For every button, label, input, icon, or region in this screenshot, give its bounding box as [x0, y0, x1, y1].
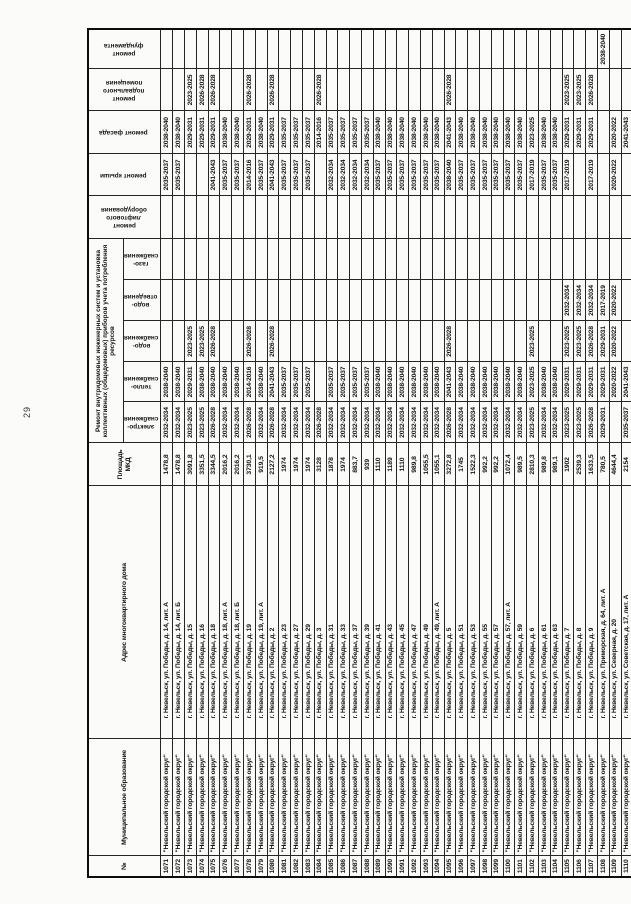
- cell-heat: 2038-2040: [456, 362, 468, 402]
- table-row: 1083"Невельский городской округ"г. Невел…: [303, 29, 315, 877]
- cell-municipality: "Невельский городской округ": [515, 739, 527, 856]
- cell-municipality: "Невельский городской округ": [267, 739, 279, 856]
- cell-roof: 2041-2043: [267, 154, 279, 196]
- cell-roof: 2041-2043: [208, 154, 220, 196]
- cell-address: г. Невельск, ул. Победы, д. 18, лит. Б: [232, 486, 244, 739]
- cell-address: г. Невельск, ул. Победы, д. 8: [574, 486, 586, 739]
- table-row: 1107"Невельский городской округ"г. Невел…: [586, 29, 598, 877]
- cell-heat: 2041-2043: [267, 362, 279, 402]
- cell-number: 1110: [621, 856, 631, 877]
- cell-water: 2023-2025: [196, 321, 208, 362]
- cell-address: г. Невельск, ул. Победы, д. 15: [185, 486, 197, 739]
- cell-municipality: "Невельский городской округ": [574, 739, 586, 856]
- cell-gas: [232, 239, 244, 280]
- cell-address: г. Невельск, ул. Победы, д. 16: [196, 486, 208, 739]
- cell-address: г. Невельск, ул. Победы, д. 2: [267, 486, 279, 739]
- cell-elevator: [586, 196, 598, 239]
- cell-electro: 2026-2028: [314, 402, 326, 443]
- cell-basement: [503, 69, 515, 111]
- cell-water: 2023-2025: [185, 321, 197, 362]
- table-row: 1080"Невельский городской округ"г. Невел…: [267, 29, 279, 877]
- cell-roof: [597, 154, 609, 196]
- cell-foundation: [303, 29, 315, 69]
- cell-number: 1083: [303, 856, 315, 877]
- cell-basement: [491, 69, 503, 111]
- cell-heat: 2029-2031: [562, 362, 574, 402]
- cell-number: 1102: [527, 856, 539, 877]
- page-number: 29: [22, 406, 32, 418]
- cell-address: г. Невельск, ул. Победы, д. 3: [314, 486, 326, 739]
- cell-number: 1086: [338, 856, 350, 877]
- cell-address: г. Невельск, ул. Победы, д. 18: [208, 486, 220, 739]
- cell-water: 2023-2025: [562, 321, 574, 362]
- cell-basement: 2026-2028: [444, 69, 456, 111]
- cell-basement: [456, 69, 468, 111]
- cell-facade: 2035-2037: [350, 111, 362, 154]
- cell-gas: [373, 239, 385, 280]
- cell-gas: [444, 239, 456, 280]
- cell-basement: [291, 69, 303, 111]
- cell-basement: [385, 69, 397, 111]
- cell-sewer: [326, 280, 338, 321]
- cell-municipality: "Невельский городской округ": [232, 739, 244, 856]
- cell-sewer: [196, 280, 208, 321]
- table-row: 1089"Невельский городской округ"г. Невел…: [373, 29, 385, 877]
- cell-gas: [291, 239, 303, 280]
- cell-electro: 2032-2034: [338, 402, 350, 443]
- cell-address: г. Невельск, ул. Победы, д. 27: [291, 486, 303, 739]
- cell-roof: 2014-2016: [244, 154, 256, 196]
- cell-elevator: [527, 196, 539, 239]
- table-row: 1102"Невельский городской округ"г. Невел…: [527, 29, 539, 877]
- cell-address: г. Невельск, ул. Победы, д. 59: [515, 486, 527, 739]
- cell-facade: 2041-2043: [621, 111, 631, 154]
- cell-water: [314, 321, 326, 362]
- table-row: 1100"Невельский городской округ"г. Невел…: [503, 29, 515, 877]
- cell-water: [421, 321, 433, 362]
- cell-area: 1745: [456, 443, 468, 486]
- cell-number: 1095: [444, 856, 456, 877]
- cell-number: 1087: [350, 856, 362, 877]
- table-row: 1094"Невельский городской округ"г. Невел…: [432, 29, 444, 877]
- cell-foundation: [373, 29, 385, 69]
- cell-basement: 2026-2028: [208, 69, 220, 111]
- cell-elevator: [208, 196, 220, 239]
- cell-elevator: [220, 196, 232, 239]
- cell-area: 1633,5: [586, 443, 598, 486]
- cell-electro: 2029-2031: [597, 402, 609, 443]
- cell-basement: [362, 69, 374, 111]
- cell-roof: 2035-2037: [456, 154, 468, 196]
- cell-municipality: "Невельский городской округ": [609, 739, 621, 856]
- cell-foundation: [362, 29, 374, 69]
- cell-water: [173, 321, 185, 362]
- cell-electro: 2032-2034: [385, 402, 397, 443]
- cell-area: 992,2: [479, 443, 491, 486]
- cell-water: 2026-2028: [244, 321, 256, 362]
- cell-number: 1094: [432, 856, 444, 877]
- cell-foundation: [456, 29, 468, 69]
- cell-sewer: [550, 280, 562, 321]
- cell-address: г. Невельск, ул. Победы, д. 45: [397, 486, 409, 739]
- cell-heat: 2038-2040: [196, 362, 208, 402]
- cell-facade: 2014-2016: [314, 111, 326, 154]
- cell-gas: [173, 239, 185, 280]
- table-row: 1101"Невельский городской округ"г. Невел…: [515, 29, 527, 877]
- cell-sewer: [255, 280, 267, 321]
- cell-roof: 2035-2037: [432, 154, 444, 196]
- cell-address: г. Невельск, ул. Победы, д. 14, лит. Б: [173, 486, 185, 739]
- cell-gas: [515, 239, 527, 280]
- cell-facade: 2029-2031: [185, 111, 197, 154]
- table-row: 1088"Невельский городской округ"г. Невел…: [362, 29, 374, 877]
- cell-roof: 2017-2019: [586, 154, 598, 196]
- cell-facade: 2029-2031: [562, 111, 574, 154]
- cell-municipality: "Невельский городской округ": [432, 739, 444, 856]
- cell-sewer: [161, 280, 173, 321]
- cell-heat: 2038-2040: [373, 362, 385, 402]
- cell-basement: [373, 69, 385, 111]
- cell-facade: 2038-2040: [421, 111, 433, 154]
- cell-roof: 2035-2037: [468, 154, 480, 196]
- cell-number: 1093: [421, 856, 433, 877]
- cell-elevator: [562, 196, 574, 239]
- cell-foundation: [562, 29, 574, 69]
- cell-facade: 2029-2031: [574, 111, 586, 154]
- cell-electro: 2035-2037: [621, 402, 631, 443]
- cell-heat: 2035-2037: [326, 362, 338, 402]
- cell-address: г. Невельск, ул. Победы, д. 57: [491, 486, 503, 739]
- cell-electro: 2032-2034: [550, 402, 562, 443]
- cell-sewer: [468, 280, 480, 321]
- cell-sewer: [621, 280, 631, 321]
- cell-heat: 2038-2040: [173, 362, 185, 402]
- table-row: 1092"Невельский городской округ"г. Невел…: [409, 29, 421, 877]
- cell-electro: 2032-2034: [538, 402, 550, 443]
- cell-electro: 2032-2034: [397, 402, 409, 443]
- cell-elevator: [444, 196, 456, 239]
- cell-municipality: "Невельский городской округ": [208, 739, 220, 856]
- cell-area: 2810,3: [527, 443, 539, 486]
- cell-address: г. Невельск, ул. Победы, д. 14, лит. А: [161, 486, 173, 739]
- cell-heat: 2038-2040: [255, 362, 267, 402]
- cell-water: [468, 321, 480, 362]
- cell-number: 1100: [503, 856, 515, 877]
- cell-sewer: [527, 280, 539, 321]
- cell-facade: 2029-2031: [208, 111, 220, 154]
- cell-foundation: [409, 29, 421, 69]
- cell-address: г. Невельск, ул. Победы, д. 49: [421, 486, 433, 739]
- cell-elevator: [468, 196, 480, 239]
- table-row: 1093"Невельский городской округ"г. Невел…: [421, 29, 433, 877]
- cell-area: 1522,3: [468, 443, 480, 486]
- cell-foundation: [397, 29, 409, 69]
- cell-water: [350, 321, 362, 362]
- cell-number: 1080: [267, 856, 279, 877]
- cell-area: 1055,5: [421, 443, 433, 486]
- table-row: 1097"Невельский городской округ"г. Невел…: [468, 29, 480, 877]
- cell-gas: [185, 239, 197, 280]
- cell-water: [397, 321, 409, 362]
- cell-elevator: [421, 196, 433, 239]
- cell-roof: 2035-2037: [503, 154, 515, 196]
- cell-address: г. Невельск, ул. Победы, д. 33: [338, 486, 350, 739]
- cell-address: г. Невельск, ул. Победы, д. 7: [562, 486, 574, 739]
- cell-sewer: [456, 280, 468, 321]
- cell-heat: [314, 362, 326, 402]
- cell-municipality: "Невельский городской округ": [409, 739, 421, 856]
- cell-electro: 2032-2034: [373, 402, 385, 443]
- cell-roof: 2035-2037: [232, 154, 244, 196]
- cell-electro: 2032-2034: [350, 402, 362, 443]
- cell-electro: 2032-2034: [409, 402, 421, 443]
- cell-heat: 2038-2040: [421, 362, 433, 402]
- cell-roof: [196, 154, 208, 196]
- col-header-elevator: ремонт лифтового оборудования: [88, 196, 161, 239]
- cell-facade: 2038-2040: [550, 111, 562, 154]
- table-row: 1104"Невельский городской округ"г. Невел…: [550, 29, 562, 877]
- cell-municipality: "Невельский городской округ": [550, 739, 562, 856]
- cell-sewer: [421, 280, 433, 321]
- cell-electro: 2032-2034: [421, 402, 433, 443]
- cell-foundation: [326, 29, 338, 69]
- cell-roof: 2017-2019: [562, 154, 574, 196]
- cell-heat: 2038-2040: [503, 362, 515, 402]
- cell-sewer: 2032-2034: [574, 280, 586, 321]
- cell-electro: 2032-2034: [232, 402, 244, 443]
- cell-elevator: [362, 196, 374, 239]
- cell-gas: [503, 239, 515, 280]
- cell-heat: 2038-2040: [232, 362, 244, 402]
- cell-number: 1088: [362, 856, 374, 877]
- cell-gas: [527, 239, 539, 280]
- cell-heat: 2038-2040: [385, 362, 397, 402]
- col-header-roof: ремонт крыши: [88, 154, 161, 196]
- cell-sewer: [385, 280, 397, 321]
- cell-elevator: [373, 196, 385, 239]
- cell-heat: 2035-2037: [350, 362, 362, 402]
- cell-facade: 2038-2040: [503, 111, 515, 154]
- cell-basement: [397, 69, 409, 111]
- cell-area: 3091,8: [185, 443, 197, 486]
- cell-water: 2026-2028: [267, 321, 279, 362]
- cell-address: г. Невельск, ул. Победы, д. 57, лит. А: [503, 486, 515, 739]
- cell-elevator: [550, 196, 562, 239]
- cell-water: [291, 321, 303, 362]
- cell-area: 2154: [621, 443, 631, 486]
- cell-electro: 2032-2034: [468, 402, 480, 443]
- cell-elevator: [185, 196, 197, 239]
- cell-heat: 2029-2031: [597, 362, 609, 402]
- col-header-foundation: ремонт фундамента: [88, 29, 161, 69]
- cell-elevator: [574, 196, 586, 239]
- cell-water: 2029-2031: [597, 321, 609, 362]
- cell-address: г. Невельск, ул. Победы, д. 43: [385, 486, 397, 739]
- col-header-basement: ремонт подвального помещения: [88, 69, 161, 111]
- cell-area: 883,7: [350, 443, 362, 486]
- col-header-water: водо- снабжения: [123, 321, 161, 362]
- table-row: 1109"Невельский городской округ"г. Невел…: [609, 29, 621, 877]
- table-row: 1110"Невельский городской округ"г. Невел…: [621, 29, 631, 877]
- cell-facade: 2029-2031: [196, 111, 208, 154]
- cell-facade: 2035-2037: [291, 111, 303, 154]
- cell-water: [479, 321, 491, 362]
- cell-number: 1076: [220, 856, 232, 877]
- col-header-gas: газо- снабжения: [123, 239, 161, 280]
- cell-elevator: [397, 196, 409, 239]
- cell-gas: [562, 239, 574, 280]
- cell-address: г. Невельск, ул. Советская, д. 17, лит. …: [621, 486, 631, 739]
- cell-number: 1071: [161, 856, 173, 877]
- cell-water: [385, 321, 397, 362]
- cell-elevator: [267, 196, 279, 239]
- cell-sewer: [244, 280, 256, 321]
- cell-address: г. Невельск, ул. Победы, д. 61: [538, 486, 550, 739]
- cell-number: 1101: [515, 856, 527, 877]
- cell-roof: 2032-2034: [338, 154, 350, 196]
- cell-foundation: [479, 29, 491, 69]
- cell-sewer: [303, 280, 315, 321]
- cell-electro: 2032-2034: [326, 402, 338, 443]
- cell-heat: 2041-2043: [444, 362, 456, 402]
- cell-sewer: [338, 280, 350, 321]
- cell-elevator: [385, 196, 397, 239]
- cell-facade: 2038-2040: [515, 111, 527, 154]
- cell-basement: [303, 69, 315, 111]
- cell-electro: 2032-2034: [456, 402, 468, 443]
- cell-elevator: [338, 196, 350, 239]
- cell-foundation: [255, 29, 267, 69]
- cell-foundation: [538, 29, 550, 69]
- cell-roof: 2035-2037: [220, 154, 232, 196]
- cell-area: 1974: [303, 443, 315, 486]
- cell-area: 3128: [314, 443, 326, 486]
- cell-gas: [350, 239, 362, 280]
- cell-electro: 2032-2034: [161, 402, 173, 443]
- cell-heat: 2029-2031: [574, 362, 586, 402]
- table-row: 1075"Невельский городской округ"г. Невел…: [208, 29, 220, 877]
- cell-elevator: [538, 196, 550, 239]
- col-header-sewer: водо- отведения: [123, 280, 161, 321]
- cell-electro: 2023-2025: [574, 402, 586, 443]
- cell-water: [279, 321, 291, 362]
- cell-facade: 2038-2040: [385, 111, 397, 154]
- cell-number: 1106: [574, 856, 586, 877]
- cell-area: 1055,1: [432, 443, 444, 486]
- cell-gas: [397, 239, 409, 280]
- cell-number: 1097: [468, 856, 480, 877]
- cell-municipality: "Невельский городской округ": [279, 739, 291, 856]
- cell-area: 2539,3: [574, 443, 586, 486]
- cell-electro: 2032-2034: [491, 402, 503, 443]
- cell-water: 2020-2022: [609, 321, 621, 362]
- cell-heat: 2029-2031: [185, 362, 197, 402]
- cell-foundation: [232, 29, 244, 69]
- cell-facade: 2029-2031: [586, 111, 598, 154]
- cell-water: [220, 321, 232, 362]
- cell-water: [515, 321, 527, 362]
- cell-area: 3730,1: [244, 443, 256, 486]
- cell-gas: [456, 239, 468, 280]
- cell-heat: 2038-2040: [397, 362, 409, 402]
- cell-facade: 2023-2025: [527, 111, 539, 154]
- cell-basement: [279, 69, 291, 111]
- cell-sewer: [538, 280, 550, 321]
- cell-area: 1478,8: [173, 443, 185, 486]
- cell-electro: 2032-2034: [220, 402, 232, 443]
- cell-heat: 2038-2040: [208, 362, 220, 402]
- cell-gas: [362, 239, 374, 280]
- cell-gas: [267, 239, 279, 280]
- cell-gas: [161, 239, 173, 280]
- cell-water: [255, 321, 267, 362]
- cell-municipality: "Невельский городской округ": [255, 739, 267, 856]
- cell-heat: 2035-2037: [362, 362, 374, 402]
- cell-facade: 2038-2040: [220, 111, 232, 154]
- cell-gas: [279, 239, 291, 280]
- cell-roof: 2035-2037: [303, 154, 315, 196]
- cell-address: г. Невельск, ул. Победы, д. 53: [468, 486, 480, 739]
- cell-heat: 2035-2037: [303, 362, 315, 402]
- cell-municipality: "Невельский городской округ": [538, 739, 550, 856]
- cell-sewer: [232, 280, 244, 321]
- cell-elevator: [255, 196, 267, 239]
- cell-electro: 2026-2028: [244, 402, 256, 443]
- cell-elevator: [314, 196, 326, 239]
- cell-area: 1878: [326, 443, 338, 486]
- cell-roof: 2035-2037: [173, 154, 185, 196]
- cell-roof: 2035-2037: [255, 154, 267, 196]
- cell-municipality: "Невельский городской округ": [503, 739, 515, 856]
- cell-sewer: [362, 280, 374, 321]
- table-row: 1081"Невельский городской округ"г. Невел…: [279, 29, 291, 877]
- cell-facade: 2038-2040: [491, 111, 503, 154]
- cell-heat: 2035-2037: [279, 362, 291, 402]
- cell-address: г. Невельск, ул. Победы, д. 18, лит. А: [220, 486, 232, 739]
- cell-basement: [232, 69, 244, 111]
- cell-sewer: 2032-2034: [586, 280, 598, 321]
- col-header-municipality: Муниципальное образование: [88, 739, 161, 856]
- cell-electro: [609, 402, 621, 443]
- cell-basement: 2023-2025: [185, 69, 197, 111]
- cell-heat: 2038-2040: [550, 362, 562, 402]
- cell-foundation: [220, 29, 232, 69]
- table-row: 1108"Невельский городской округ"г. Невел…: [597, 29, 609, 877]
- cell-municipality: "Невельский городской округ": [621, 739, 631, 856]
- cell-basement: [421, 69, 433, 111]
- cell-address: г. Невельск, ул. Победы, д. 41: [373, 486, 385, 739]
- table-row: 1077"Невельский городской округ"г. Невел…: [232, 29, 244, 877]
- table-row: 1082"Невельский городской округ"г. Невел…: [291, 29, 303, 877]
- cell-elevator: [326, 196, 338, 239]
- cell-municipality: "Невельский городской округ": [562, 739, 574, 856]
- cell-facade: 2035-2037: [338, 111, 350, 154]
- cell-municipality: "Невельский городской округ": [161, 739, 173, 856]
- cell-gas: [208, 239, 220, 280]
- cell-basement: 2026-2028: [586, 69, 598, 111]
- cell-elevator: [173, 196, 185, 239]
- cell-number: 1109: [609, 856, 621, 877]
- cell-area: 989,5: [515, 443, 527, 486]
- cell-heat: 2038-2040: [468, 362, 480, 402]
- cell-basement: [538, 69, 550, 111]
- cell-basement: 2026-2028: [244, 69, 256, 111]
- table-row: 1086"Невельский городской округ"г. Невел…: [338, 29, 350, 877]
- cell-heat: 2038-2040: [409, 362, 421, 402]
- cell-number: 1084: [314, 856, 326, 877]
- cell-gas: [220, 239, 232, 280]
- cell-elevator: [409, 196, 421, 239]
